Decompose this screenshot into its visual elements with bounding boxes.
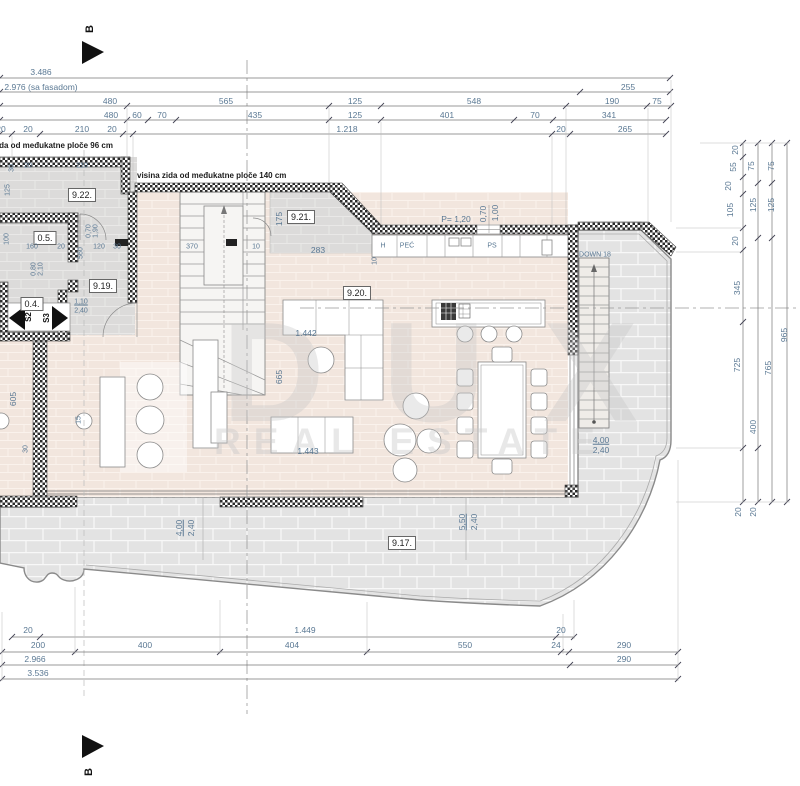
dim-label: 175 [275, 212, 284, 226]
dim-label: 20 [749, 507, 758, 516]
kitchen-sink [449, 238, 459, 246]
tub-chair [137, 442, 163, 468]
room-label-921: 9.21. [287, 210, 315, 224]
dim-label: 290 [617, 641, 631, 650]
dim-label: 1.218 [336, 125, 357, 134]
kitchen-hob [542, 240, 552, 255]
dim-label: 24 [551, 641, 560, 650]
dim-label: visina zida od međukatne ploče 96 cm [0, 142, 113, 150]
shutter-s2-label: S2 [25, 312, 33, 322]
dim-label: 3.486 [30, 68, 51, 77]
dim-label: 1,00 [491, 205, 500, 222]
dim-label: 190 [605, 97, 619, 106]
dim-label: 480 [103, 97, 117, 106]
tub-chair [136, 406, 164, 434]
dim-label: 125 [348, 97, 362, 106]
dim-label: 30 [9, 164, 16, 172]
dim-label: 20 [57, 244, 65, 251]
dim-label: 20 [734, 507, 743, 516]
room-label-917: 9.17. [388, 536, 416, 550]
dim-label: 125 [749, 198, 758, 212]
dim-label: 2,40 [74, 308, 88, 315]
dim-label: 20 [731, 145, 740, 154]
dim-label: 550 [458, 641, 472, 650]
dim-label: 125 [5, 184, 12, 196]
dim-label: 0,70 [86, 224, 93, 238]
dim-label: 665 [275, 370, 284, 384]
dim-label: 4,00 [593, 436, 610, 445]
dim-label: 565 [219, 97, 233, 106]
dim-label: 1,90 [93, 224, 100, 238]
dim-label: 2.976 (sa fasadom) [4, 83, 77, 92]
dim-label: 120 [93, 244, 105, 251]
room-label-922: 9.22. [68, 188, 96, 202]
dim-label: 100 [4, 233, 11, 245]
floorplan-page: DUX REAL ESTATE B B 3.4862.976 (sa fasad… [0, 0, 800, 786]
dim-label: 75 [747, 161, 756, 170]
dim-label: 400 [749, 420, 758, 434]
dim-label: 20 [0, 125, 6, 134]
dim-label: 20 [556, 626, 565, 635]
bench-table [100, 377, 125, 467]
dim-label: 2.966 [24, 655, 45, 664]
dim-label: 765 [764, 361, 773, 375]
dim-label: 75 [652, 97, 661, 106]
dim-label: 20 [731, 236, 740, 245]
watermark-subtitle: REAL ESTATE [214, 423, 608, 460]
section-label-b-bottom: B [83, 768, 95, 776]
dim-label: 2,40 [593, 446, 610, 455]
dim-label: 1.449 [294, 626, 315, 635]
dim-label: 125 [348, 111, 362, 120]
dim-label: 10 [252, 244, 260, 251]
dim-label: 20 [24, 163, 32, 170]
dim-label: 0,80 [31, 262, 38, 276]
dim-label: 548 [467, 97, 481, 106]
dim-label: 60 [132, 111, 141, 120]
dim-label: 345 [733, 281, 742, 295]
dim-label: 210 [75, 125, 89, 134]
dim-label: 55 [729, 162, 738, 171]
dim-label: 2,10 [38, 262, 45, 276]
shutter-s3-label: S3 [43, 313, 51, 323]
dim-label: 160 [26, 244, 38, 251]
dim-label: 255 [621, 83, 635, 92]
tub-chair [137, 374, 163, 400]
dim-label: 1.443 [297, 447, 318, 456]
dim-label: 370 [186, 244, 198, 251]
room-label-04: 0.4. [20, 297, 43, 311]
dim-label: 480 [104, 111, 118, 120]
dim-label: 105 [726, 203, 735, 217]
dim-label: 200 [31, 641, 45, 650]
dim-label: 75 [767, 161, 776, 170]
dim-label: 290 [617, 655, 631, 664]
dim-label: 5,50 [458, 514, 467, 531]
dim-label: 1.442 [295, 329, 316, 338]
dim-label: 401 [440, 111, 454, 120]
dim-label: 965 [780, 328, 789, 342]
room-label-919: 9.19. [89, 279, 117, 293]
dim-label: 20 [23, 125, 32, 134]
section-marker-bottom-icon [82, 735, 104, 758]
down-stairs-label: DOWN 18 [579, 252, 611, 259]
dim-label: 4,00 [175, 520, 184, 537]
kitchen-hood-label: H [380, 243, 385, 250]
dim-label: 404 [285, 641, 299, 650]
dim-label: 0,70 [479, 206, 488, 223]
dim-label: 265 [618, 125, 632, 134]
dim-label: 560 [78, 247, 85, 259]
dim-label: 341 [602, 111, 616, 120]
dim-label: 20 [556, 125, 565, 134]
dim-label: 70 [530, 111, 539, 120]
dim-label: 283 [311, 246, 325, 255]
dim-label: 20 [23, 626, 32, 635]
dim-label: visina zida od međukatne ploče 140 cm [137, 172, 286, 180]
dim-label: P= 1,20 [441, 215, 471, 224]
dim-label: 3.536 [27, 669, 48, 678]
dim-label: 10 [372, 257, 379, 265]
section-label-b-top: B [84, 25, 96, 33]
kitchen-stove-label: PEĆ [400, 243, 414, 250]
dim-label: 435 [248, 111, 262, 120]
dim-label: 15 [76, 416, 83, 424]
dim-label: 20 [724, 181, 733, 190]
dim-label: 400 [138, 641, 152, 650]
dim-label: 125 [767, 198, 776, 212]
dim-label: 605 [9, 392, 18, 406]
dim-label: 20 [107, 125, 116, 134]
dim-label: 70 [157, 111, 166, 120]
south-parapet-wall [220, 497, 363, 507]
dim-label: 2,40 [187, 520, 196, 537]
dim-label: 30 [113, 244, 121, 251]
kitchen-ps-label: PS [487, 243, 496, 250]
room-label-920: 9.20. [343, 286, 371, 300]
dim-label: 210 [76, 163, 88, 170]
section-marker-top-icon [82, 41, 104, 64]
dim-label: 30 [23, 445, 30, 453]
dim-label: 1,10 [74, 299, 88, 306]
dim-label: 725 [733, 358, 742, 372]
dim-label: 2,40 [470, 514, 479, 531]
